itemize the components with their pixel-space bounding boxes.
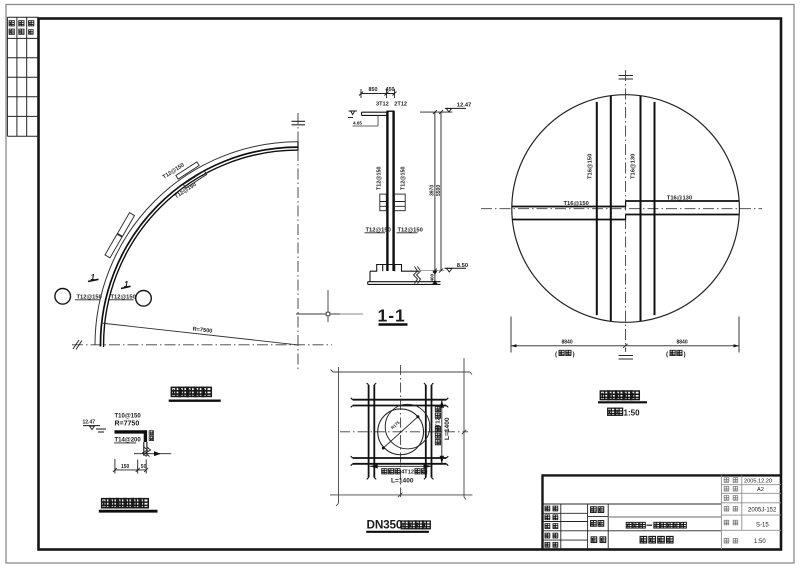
svg-text:8840: 8840 xyxy=(677,340,688,346)
svg-text:850: 850 xyxy=(369,87,378,93)
svg-text:S-15: S-15 xyxy=(756,523,769,529)
svg-text:5500: 5500 xyxy=(436,185,442,196)
svg-text:R=7750: R=7750 xyxy=(115,420,140,427)
svg-text:A2: A2 xyxy=(757,487,764,493)
svg-text:1: 1 xyxy=(91,273,96,282)
svg-text:T16@150: T16@150 xyxy=(564,201,589,207)
svg-text:T16@130: T16@130 xyxy=(667,196,692,202)
svg-text:450: 450 xyxy=(386,87,395,93)
svg-text:T16@130: T16@130 xyxy=(631,154,637,179)
svg-text:1:50: 1:50 xyxy=(624,409,641,418)
svg-text:3T12: 3T12 xyxy=(376,101,389,107)
svg-text:): ) xyxy=(684,351,686,358)
svg-text:50: 50 xyxy=(141,464,147,470)
svg-text:4.65: 4.65 xyxy=(353,121,362,126)
svg-text:2T12: 2T12 xyxy=(394,101,407,107)
svg-text:4T12: 4T12 xyxy=(436,417,442,430)
svg-text:L=1400: L=1400 xyxy=(444,417,451,440)
svg-text:T16@150: T16@150 xyxy=(588,154,594,179)
svg-text:2005.12.20: 2005.12.20 xyxy=(744,479,772,485)
svg-text:DN350: DN350 xyxy=(367,518,403,532)
svg-text:400: 400 xyxy=(430,273,435,281)
svg-text:4T12: 4T12 xyxy=(401,469,414,475)
svg-text:3970: 3970 xyxy=(430,185,436,196)
svg-text:T12@150: T12@150 xyxy=(401,166,407,190)
svg-text:1:50: 1:50 xyxy=(754,539,766,545)
svg-text:L=1400: L=1400 xyxy=(391,478,414,485)
svg-text:T10@150: T10@150 xyxy=(115,413,142,419)
svg-text:8840: 8840 xyxy=(562,340,573,346)
svg-text:1: 1 xyxy=(124,280,129,289)
svg-text:2005J-152: 2005J-152 xyxy=(748,508,777,514)
svg-text:): ) xyxy=(573,351,575,358)
svg-text:150: 150 xyxy=(121,464,130,470)
svg-text:12.47: 12.47 xyxy=(83,420,96,426)
svg-text:T12@150: T12@150 xyxy=(377,166,383,190)
svg-text:12.47: 12.47 xyxy=(457,103,472,109)
svg-text:1-1: 1-1 xyxy=(378,306,406,326)
